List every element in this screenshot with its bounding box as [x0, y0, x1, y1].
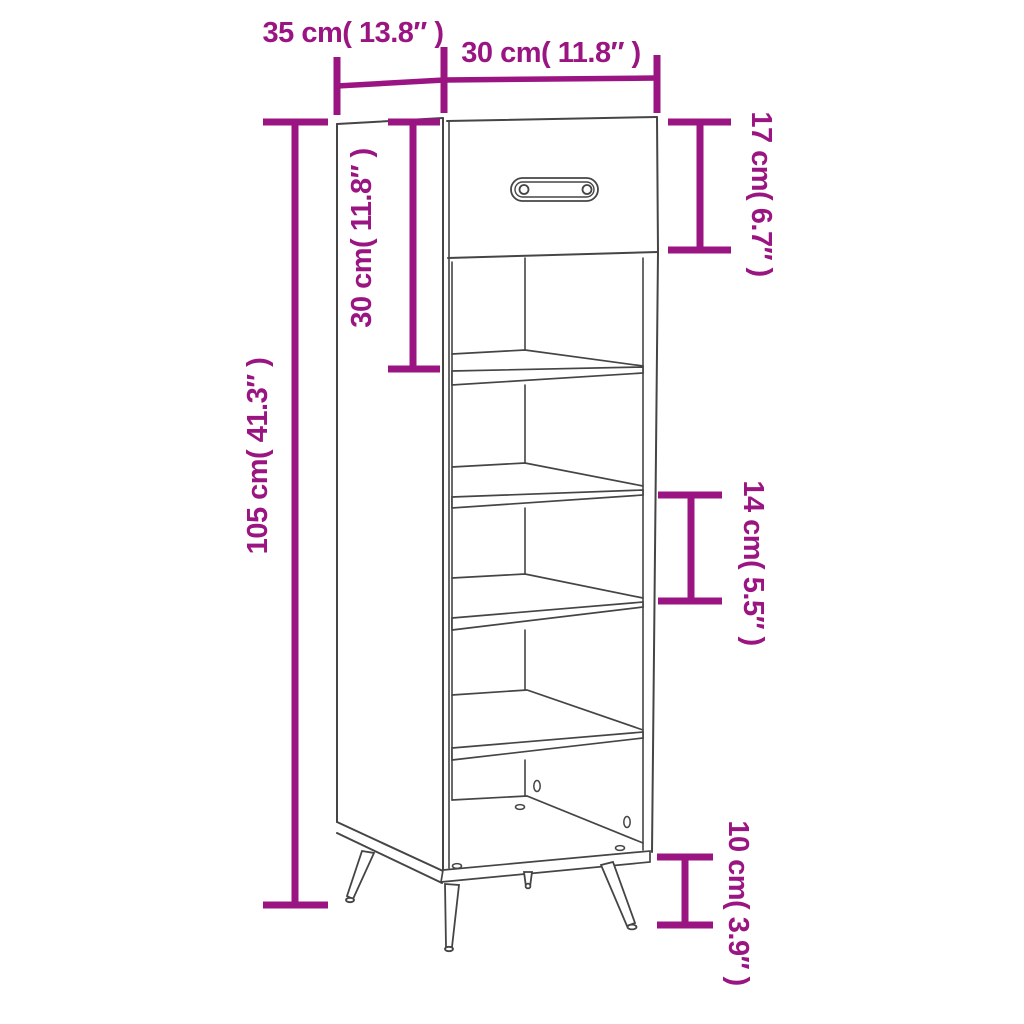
shelf-1 [452, 350, 643, 385]
cabinet-drawing [337, 117, 658, 951]
drawer-front [447, 117, 658, 258]
interior-edges [452, 258, 525, 800]
shoe-cabinet-diagram: 35 cm( 13.8″ ) 30 cm( 11.8″ ) 17 cm( 6.7… [0, 0, 1024, 1024]
carcass-right-edge [643, 252, 658, 852]
leg-back-center [524, 872, 532, 888]
shelf-2 [452, 463, 643, 508]
diagram-canvas: 35 cm( 13.8″ ) 30 cm( 11.8″ ) 17 cm( 6.7… [0, 0, 1024, 1024]
label-upper-compartment: 30 cm( 11.8″ ) [346, 148, 378, 327]
dim-bracket-drawer-height [668, 122, 731, 250]
label-width: 30 cm( 11.8″ ) [461, 37, 640, 69]
leg-front-right [601, 862, 637, 929]
dim-bracket-upper-compartment [388, 122, 440, 369]
label-legs-height: 10 cm( 3.9″ ) [722, 820, 754, 985]
dimension-marks [263, 47, 731, 925]
shelf-4 [452, 690, 643, 760]
bottom-board [441, 796, 650, 882]
dim-bracket-shelf-gap [658, 495, 722, 601]
dim-bracket-legs [657, 857, 713, 925]
drawer-handle [511, 178, 598, 201]
leg-back-left [346, 851, 374, 902]
label-overall-height: 105 cm( 41.3″ ) [242, 358, 274, 555]
leg-front-left [445, 884, 459, 951]
shelf-3 [452, 574, 643, 630]
label-drawer-height: 17 cm( 6.7″ ) [745, 111, 777, 276]
label-shelf-gap: 14 cm( 5.5″ ) [737, 480, 769, 645]
label-depth: 35 cm( 13.8″ ) [263, 17, 444, 49]
